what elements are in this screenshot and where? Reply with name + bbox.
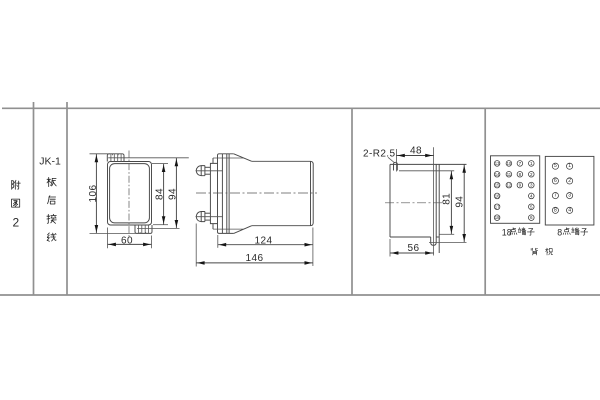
svg-text:60: 60 <box>121 236 133 247</box>
svg-text:8: 8 <box>557 228 562 238</box>
svg-text:106: 106 <box>88 185 99 203</box>
svg-text:18: 18 <box>495 215 500 220</box>
svg-text:1: 1 <box>530 161 533 166</box>
svg-text:81: 81 <box>442 193 453 205</box>
svg-text:2: 2 <box>530 172 533 177</box>
svg-text:12: 12 <box>507 183 512 188</box>
svg-text:2: 2 <box>12 215 19 229</box>
svg-text:4: 4 <box>530 193 533 198</box>
svg-text:3: 3 <box>568 193 571 199</box>
svg-text:4: 4 <box>568 207 571 213</box>
svg-text:8: 8 <box>519 172 522 177</box>
svg-text:56: 56 <box>408 243 420 254</box>
svg-text:124: 124 <box>255 235 273 246</box>
svg-text:5: 5 <box>554 163 557 169</box>
svg-text:10: 10 <box>507 161 512 166</box>
svg-text:5: 5 <box>530 204 533 209</box>
svg-text:8: 8 <box>554 207 557 213</box>
svg-text:84: 84 <box>154 188 165 200</box>
svg-text:18: 18 <box>502 228 512 238</box>
svg-text:7: 7 <box>519 161 522 166</box>
svg-text:15: 15 <box>495 183 500 188</box>
svg-text:146: 146 <box>246 253 264 264</box>
svg-text:94: 94 <box>455 196 466 208</box>
svg-text:2: 2 <box>568 178 571 184</box>
svg-text:16: 16 <box>495 193 500 198</box>
svg-text:11: 11 <box>507 172 512 177</box>
svg-text:3: 3 <box>530 183 533 188</box>
svg-text:94: 94 <box>168 188 179 200</box>
svg-text:9: 9 <box>519 183 522 188</box>
svg-text:JK-1: JK-1 <box>39 156 61 168</box>
svg-text:7: 7 <box>554 193 557 199</box>
svg-text:13: 13 <box>495 161 500 166</box>
svg-text:17: 17 <box>495 204 500 209</box>
svg-text:48: 48 <box>410 146 422 157</box>
svg-text:14: 14 <box>495 172 500 177</box>
svg-text:2-R2.5: 2-R2.5 <box>363 149 395 160</box>
svg-text:1: 1 <box>568 163 571 169</box>
svg-text:6: 6 <box>530 215 533 220</box>
svg-text:6: 6 <box>554 178 557 184</box>
